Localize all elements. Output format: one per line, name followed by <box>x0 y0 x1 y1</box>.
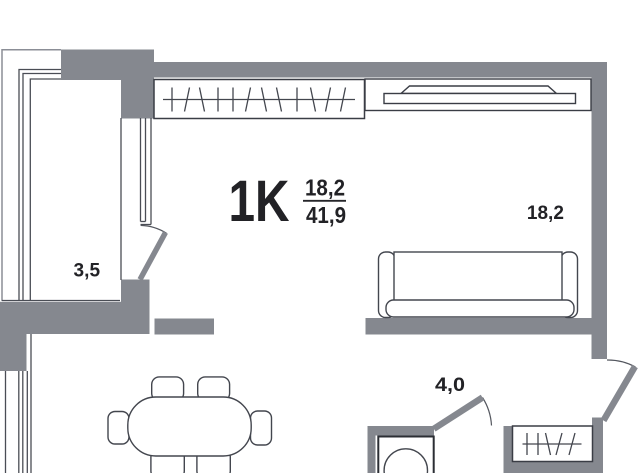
svg-text:4,0: 4,0 <box>435 375 465 396</box>
svg-text:1K: 1K <box>229 169 290 234</box>
svg-text:41,9: 41,9 <box>306 202 346 228</box>
svg-text:18,2: 18,2 <box>305 175 345 201</box>
svg-text:18,2: 18,2 <box>527 203 564 224</box>
svg-text:3,5: 3,5 <box>74 260 101 281</box>
